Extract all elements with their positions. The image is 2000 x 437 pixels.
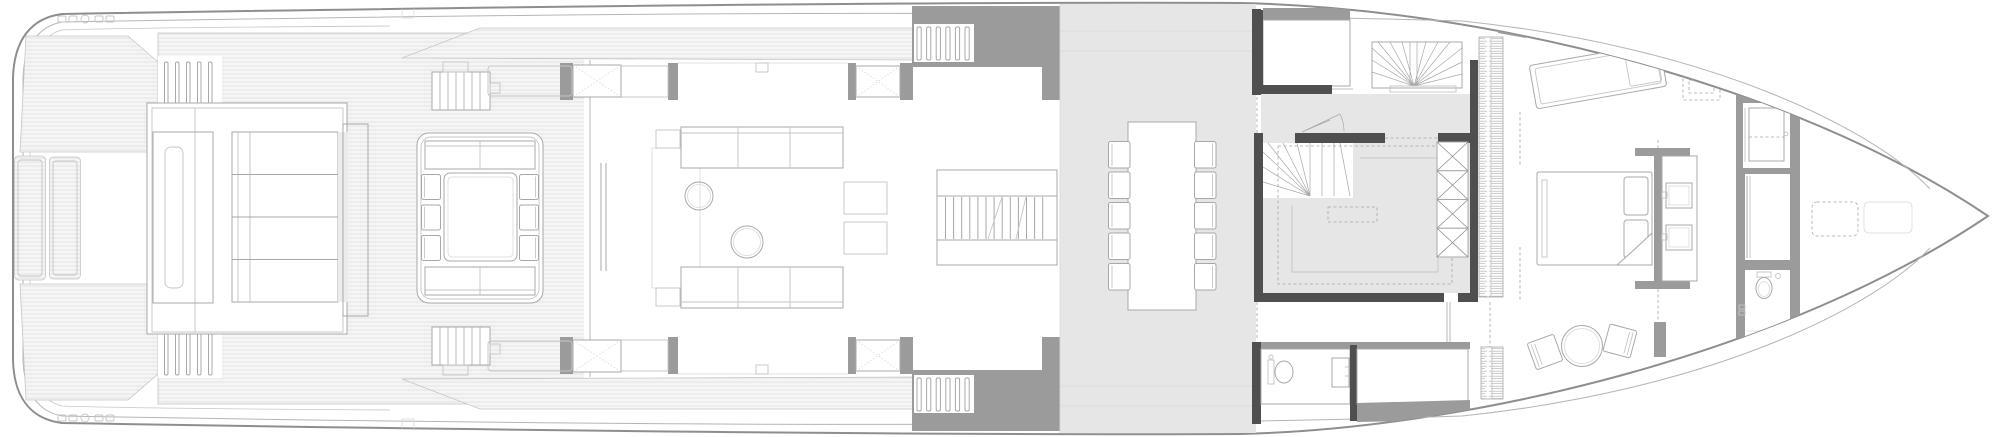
walk-in-closet — [1745, 174, 1790, 260]
pantry-wall — [1254, 10, 1263, 94]
bulwark — [1263, 8, 1350, 20]
wall-seg — [900, 63, 913, 100]
wall-seg — [900, 337, 913, 374]
stair-slat — [198, 62, 202, 106]
wall-gray — [1357, 400, 1470, 422]
aft-dining-set — [417, 133, 543, 303]
wall-dark — [1350, 345, 1357, 421]
lazarette-hatch — [15, 156, 46, 280]
stair-slat — [955, 378, 959, 411]
tv-console — [937, 170, 1057, 265]
stair-slat — [946, 378, 950, 411]
wall-dark — [1254, 293, 1444, 302]
aft-stairs-top — [432, 72, 490, 110]
wall-seg — [668, 337, 678, 374]
teak-deck-aft-top — [20, 36, 158, 152]
headboard-cap — [1635, 281, 1690, 289]
wall-dark — [1458, 293, 1478, 302]
side-deck-teak-bottom — [402, 377, 913, 409]
headboard-cap — [1635, 148, 1690, 156]
stair-slat — [176, 331, 180, 375]
dining-table — [1128, 122, 1196, 310]
wall-dark — [1254, 133, 1263, 302]
dining-area — [1060, 4, 1261, 433]
stair-slat — [936, 27, 940, 60]
stair-slat — [165, 331, 169, 375]
window-mullion — [1628, 379, 1662, 400]
headboard-partition — [1654, 156, 1662, 281]
bulwark-block-bottom — [1042, 337, 1060, 370]
wall-seg — [848, 63, 856, 100]
x-front-wardrobe — [1437, 142, 1468, 257]
salon-sofa-top — [681, 127, 843, 168]
aft-dining-table — [444, 173, 517, 261]
sunpad-platform — [147, 103, 347, 334]
beach-club-sunpad — [147, 103, 368, 334]
wall-seg — [848, 337, 856, 374]
stairs-down-box — [1263, 143, 1353, 198]
wall-seg — [668, 63, 678, 100]
service-room — [1350, 345, 1470, 422]
bulkhead-dark — [1252, 342, 1261, 424]
salon-sofa-bottom — [681, 267, 843, 308]
pantry — [1263, 20, 1350, 86]
window-mullion — [1628, 37, 1662, 58]
teak-deck-aft-bottom — [20, 284, 158, 400]
stair-slat — [917, 378, 921, 411]
wall-dark — [1470, 60, 1478, 302]
wall-seg — [560, 63, 573, 100]
aft-stairs-bottom — [432, 327, 490, 365]
floor-plan-canvas — [0, 0, 2000, 437]
stair-slat — [165, 62, 169, 106]
shower — [1743, 103, 1790, 168]
service-room-floor — [1357, 349, 1468, 404]
stair-slat — [209, 331, 213, 375]
wall-gray — [1261, 342, 1470, 349]
stair-slat — [927, 378, 931, 411]
stair-slat — [965, 378, 969, 411]
stair-slat — [176, 62, 180, 106]
stair-slat — [198, 331, 202, 375]
wall-seg — [560, 337, 573, 374]
pantry-wall — [1254, 85, 1332, 94]
stair-slat — [187, 62, 191, 106]
wall-dark — [1295, 133, 1385, 143]
stair-slat — [917, 27, 921, 60]
stair-slat — [927, 27, 931, 60]
stair-slat — [946, 27, 950, 60]
side-deck-teak-top — [402, 28, 913, 60]
stair-slat — [965, 27, 969, 60]
wc-room — [1739, 270, 1790, 345]
stair-slat — [209, 62, 213, 106]
owners-bathroom — [1736, 60, 1800, 377]
wall-stub — [1654, 322, 1666, 357]
stair-slat — [955, 27, 959, 60]
yacht-floor-plan — [0, 0, 2000, 437]
bulwark-block-top — [1042, 67, 1060, 100]
stair-slat — [936, 378, 940, 411]
stair-slat — [187, 331, 191, 375]
lazarette-hatch — [50, 157, 81, 279]
